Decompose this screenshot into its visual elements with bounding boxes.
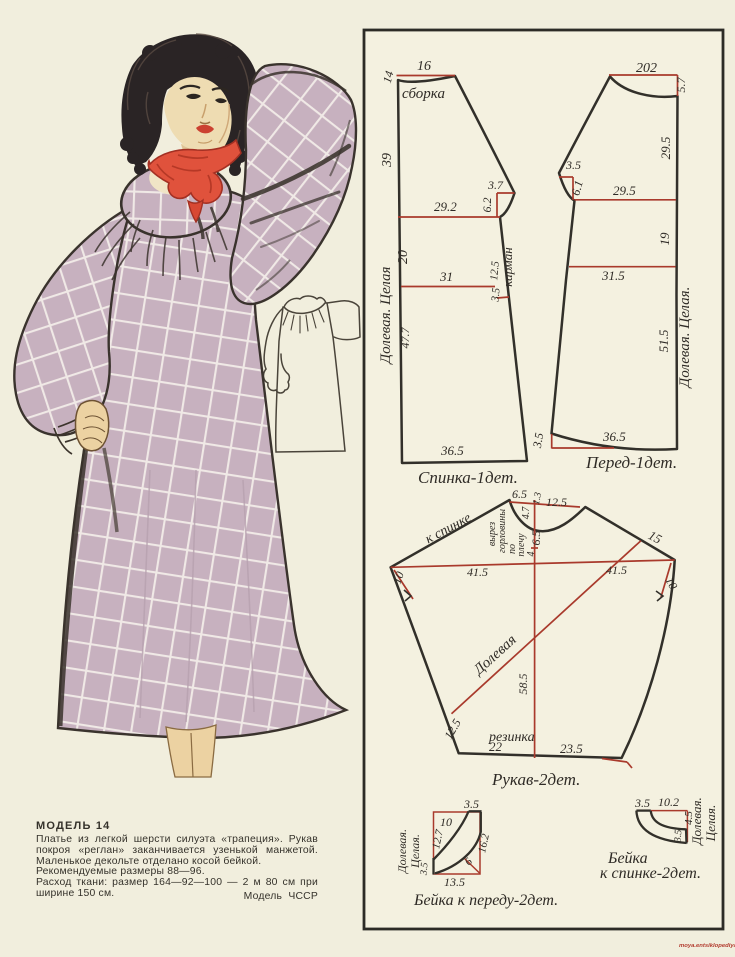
svg-text:12.5: 12.5 [546,495,567,509]
svg-text:29.2: 29.2 [434,199,457,214]
svg-text:36.5: 36.5 [440,443,464,458]
svg-text:10: 10 [440,815,452,829]
svg-text:22: 22 [489,739,503,754]
svg-text:3.5: 3.5 [489,287,502,303]
svg-text:12.5: 12.5 [488,260,502,281]
svg-text:31.5: 31.5 [601,268,625,283]
svg-text:Долевая. Целая: Долевая. Целая [378,267,394,366]
svg-text:47.7: 47.7 [398,327,412,349]
svg-text:19: 19 [657,232,672,246]
svg-text:39: 39 [380,153,395,168]
svg-text:51.5: 51.5 [656,329,671,352]
svg-text:Долевая. Целая.: Долевая. Целая. [677,287,693,390]
svg-text:202: 202 [636,61,657,76]
svg-text:3.7: 3.7 [487,178,504,192]
svg-text:6.2: 6.2 [480,198,494,213]
svg-text:3.5: 3.5 [463,797,479,811]
svg-text:3.5: 3.5 [673,829,685,843]
svg-text:4.7: 4.7 [521,506,532,520]
svg-text:1.3: 1.3 [531,491,544,505]
svg-text:5.7: 5.7 [674,77,688,93]
svg-text:3.5: 3.5 [634,796,650,810]
svg-text:Рукав-2дет.: Рукав-2дет. [491,770,580,789]
svg-text:Долевая.: Долевая. [689,797,704,847]
svg-text:31: 31 [439,269,453,284]
svg-text:6.5: 6.5 [512,487,527,501]
svg-text:23.5: 23.5 [560,741,583,756]
svg-text:4: 4 [526,552,537,557]
svg-text:36.5: 36.5 [602,429,626,444]
svg-text:29.5: 29.5 [658,136,673,159]
svg-text:13.5: 13.5 [444,875,465,889]
svg-text:10.2: 10.2 [658,795,679,809]
svg-text:Целая.: Целая. [408,834,422,869]
svg-text:20: 20 [396,250,411,264]
svg-text:Долевая.: Долевая. [395,829,409,874]
svg-text:16: 16 [417,59,431,74]
svg-text:Бейка к переду-2дет.: Бейка к переду-2дет. [413,892,558,909]
svg-text:Перед-1дет.: Перед-1дет. [585,453,677,472]
svg-text:Целая.: Целая. [703,805,718,842]
svg-text:сборка: сборка [402,86,445,102]
svg-text:карман: карман [500,247,515,286]
svg-text:41.5: 41.5 [606,563,627,577]
svg-text:29.5: 29.5 [613,183,636,198]
svg-text:Спинка-1дет.: Спинка-1дет. [418,468,518,487]
svg-text:к спинке-2дет.: к спинке-2дет. [600,865,701,882]
svg-text:6.5: 6.5 [529,531,543,546]
svg-text:41.5: 41.5 [467,565,488,579]
svg-text:3.5: 3.5 [530,432,547,450]
svg-text:58.5: 58.5 [516,674,530,695]
svg-text:3.5: 3.5 [565,158,581,172]
